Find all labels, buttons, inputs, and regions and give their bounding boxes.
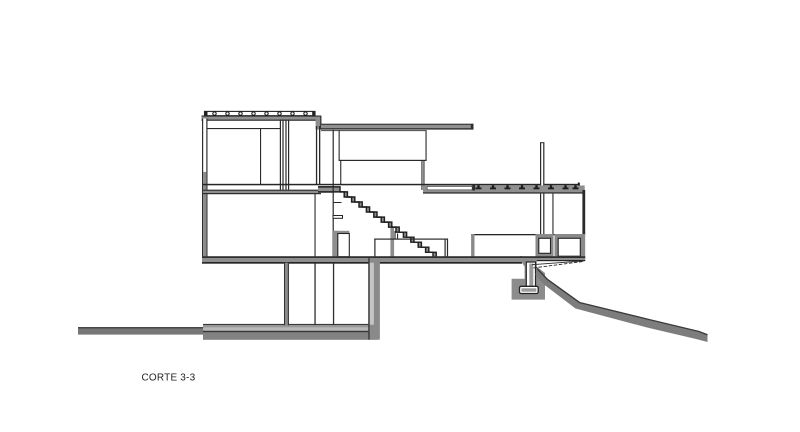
svg-text:CORTE 3-3: CORTE 3-3 (142, 373, 196, 384)
